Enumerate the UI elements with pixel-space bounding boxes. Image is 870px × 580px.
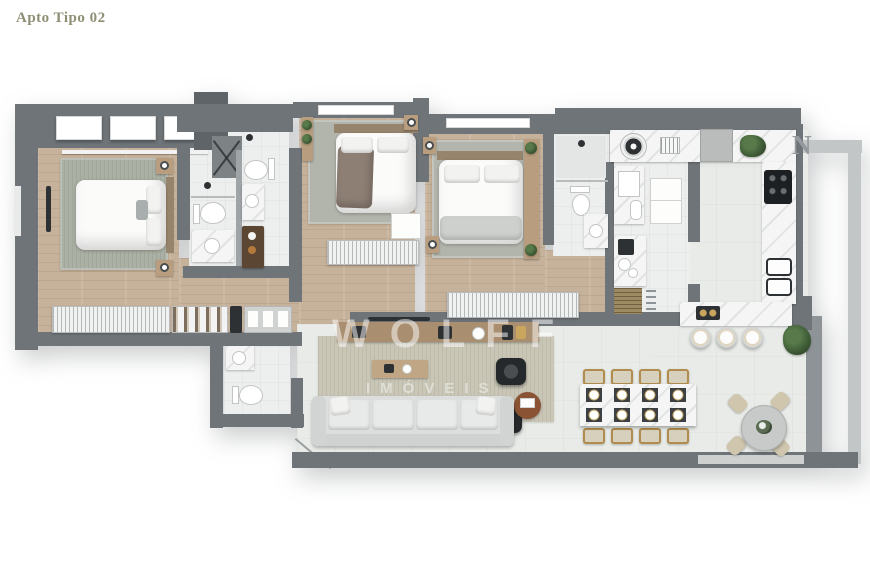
dining-chair xyxy=(611,428,633,444)
bedroom3-wardrobe xyxy=(447,292,579,318)
place-setting xyxy=(614,388,630,402)
toilet-tank xyxy=(232,386,239,404)
window-strip xyxy=(446,118,530,128)
dish-rack xyxy=(660,137,680,154)
window-box xyxy=(56,116,102,140)
toiletry-bottle xyxy=(248,246,256,254)
wall-bedroom1-bath xyxy=(177,148,190,240)
closet-hanging-clothes xyxy=(52,306,170,333)
wall-laundry-kitchen-top xyxy=(688,162,700,242)
laundry-tub xyxy=(618,171,640,197)
sink-basin xyxy=(589,224,603,238)
shower-head xyxy=(246,134,253,141)
seat-cushion xyxy=(416,400,458,430)
service-doormat xyxy=(614,288,642,314)
wall-lavatory-right xyxy=(291,378,303,428)
table-centerpiece xyxy=(756,420,772,434)
table-lamp xyxy=(160,161,169,170)
dining-chair xyxy=(667,369,689,385)
sink-basin xyxy=(232,351,246,365)
place-setting xyxy=(642,408,658,422)
bedroom2-wardrobe xyxy=(327,240,419,265)
bed-throw xyxy=(440,216,522,240)
wall-top-bathrooms xyxy=(177,104,293,132)
counter-plant xyxy=(740,135,766,157)
potted-plant xyxy=(302,120,312,130)
toilet-tank xyxy=(570,186,590,193)
dining-chair xyxy=(667,428,689,444)
potted-plant xyxy=(525,142,537,154)
bar-stool xyxy=(742,327,763,348)
window-box xyxy=(110,116,156,140)
seat-cushion xyxy=(372,400,414,430)
throw-pillow xyxy=(136,200,148,220)
sink-basin xyxy=(204,238,220,254)
terrace-plant xyxy=(783,325,811,355)
toilet-tank xyxy=(268,158,275,180)
place-setting xyxy=(586,388,602,402)
toilet xyxy=(244,160,268,180)
wall-baths-bedroom2 xyxy=(289,148,302,302)
table-lamp xyxy=(407,118,416,127)
dining-chair xyxy=(611,369,633,385)
folded-towels xyxy=(262,310,274,328)
service-steps xyxy=(646,290,656,314)
closet-shoe-rack xyxy=(172,306,228,333)
laundry-sink xyxy=(630,200,642,220)
bed-pillow xyxy=(444,165,480,183)
window-strip xyxy=(318,105,394,115)
study-desk xyxy=(372,360,428,378)
wall-lavatory-bottom xyxy=(210,414,304,427)
bar-stool xyxy=(716,327,737,348)
decor-bowl xyxy=(472,327,485,340)
sofa-arm xyxy=(312,396,326,446)
toilet xyxy=(200,202,226,224)
table-lamp xyxy=(160,263,169,272)
place-setting xyxy=(614,408,630,422)
table-lamp xyxy=(425,141,434,150)
shower-head xyxy=(204,182,211,189)
cabinet-divider xyxy=(650,200,682,201)
throw-pillow xyxy=(475,396,497,416)
bed-blanket xyxy=(336,145,374,208)
folded-towels xyxy=(247,310,259,328)
sofa-arm xyxy=(500,396,514,446)
dining-chair xyxy=(583,428,605,444)
bed3-headboard xyxy=(437,151,523,160)
bed-pillow xyxy=(377,137,409,153)
window-bench xyxy=(524,139,539,259)
bed-pillow xyxy=(484,165,520,183)
wall-hall-baths xyxy=(183,266,293,278)
table-lamp xyxy=(428,240,437,249)
console-speaker xyxy=(502,325,513,340)
plate-stack xyxy=(628,268,638,278)
kitchen-sink xyxy=(766,258,792,276)
magazine xyxy=(520,398,535,408)
place-setting xyxy=(586,408,602,422)
dining-chair xyxy=(639,369,661,385)
dining-chair xyxy=(583,369,605,385)
window-left xyxy=(14,186,21,236)
decor-vase xyxy=(516,326,526,339)
floor-plan: N WOLFF IMÓVEIS xyxy=(0,0,870,580)
bar-stool xyxy=(690,327,711,348)
potted-plant xyxy=(525,244,537,256)
cooktop xyxy=(764,170,792,204)
throw-pillow xyxy=(329,396,351,417)
place-setting xyxy=(670,408,686,422)
console-box xyxy=(438,326,452,339)
place-setting xyxy=(642,388,658,402)
potted-plant xyxy=(302,134,312,144)
toilet-tank xyxy=(193,204,200,224)
place-setting xyxy=(670,388,686,402)
desk-plant xyxy=(402,364,412,374)
dining-chair xyxy=(639,428,661,444)
console-speaker xyxy=(352,326,366,338)
toiletry-bottle xyxy=(248,232,256,240)
terrace-wall-right-outer xyxy=(848,140,861,464)
closet-cabinet xyxy=(230,306,242,333)
wall-closet-bottom xyxy=(15,332,302,346)
sofa-back xyxy=(312,434,514,446)
shower-glass xyxy=(191,196,235,198)
shower-glass xyxy=(556,180,608,182)
bed-pillow xyxy=(146,186,162,214)
washing-machine xyxy=(620,133,647,160)
kitchen-sink xyxy=(766,278,792,296)
shower-head xyxy=(578,140,585,147)
bed-pillow xyxy=(146,218,162,246)
bed-pillow xyxy=(341,137,373,153)
toilet xyxy=(239,385,263,405)
folded-towels xyxy=(277,310,289,328)
coffee-machine xyxy=(618,239,634,255)
storage-cabinet xyxy=(650,178,682,224)
dresser xyxy=(391,213,421,239)
sink-basin xyxy=(245,194,259,208)
terrace-railing xyxy=(698,455,804,464)
wall-bedroom3-bath3 xyxy=(543,131,554,245)
bed1-headboard xyxy=(166,177,174,253)
office-chair xyxy=(496,358,526,385)
north-indicator: N xyxy=(792,130,812,161)
floor-plan-page: Apto Tipo 02 xyxy=(0,0,870,580)
serving-tray xyxy=(696,306,720,320)
wall-tv xyxy=(46,186,51,232)
soundbar xyxy=(368,317,430,321)
refrigerator xyxy=(700,129,733,162)
desk-items xyxy=(384,364,394,373)
